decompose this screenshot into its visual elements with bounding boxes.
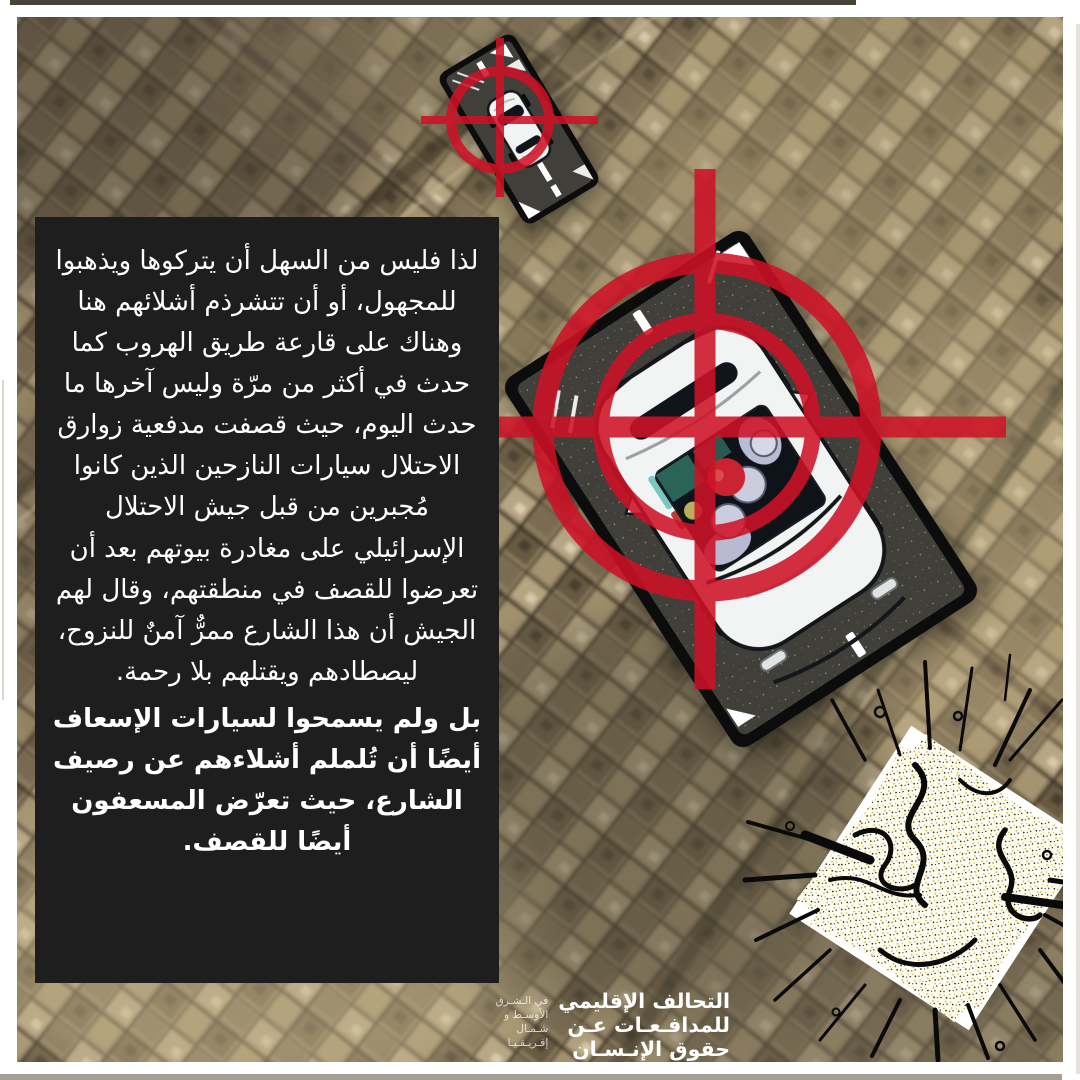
org-region-line: شـمـال bbox=[496, 1022, 549, 1036]
org-name-line: التحالف الإقليمي bbox=[558, 989, 730, 1013]
story-body-text: لذا فليس من السهل أن يتركوها ويذهبوا للم… bbox=[51, 241, 483, 693]
org-region-line: إفـريـقـيـا bbox=[496, 1036, 549, 1050]
crosshair-icon-large bbox=[434, 169, 1006, 689]
org-name: التحالف الإقليمي للمدافـعـات عـن حقوق ال… bbox=[558, 989, 730, 1061]
crosshair-icon-small bbox=[421, 38, 598, 197]
org-logo: التحالف الإقليمي للمدافـعـات عـن حقوق ال… bbox=[430, 989, 730, 1061]
org-region-line: في الـشـرق bbox=[496, 994, 549, 1008]
aerial-photo: لذا فليس من السهل أن يتركوها ويذهبوا للم… bbox=[17, 17, 1063, 1062]
org-name-line: حقوق الإنـسـان bbox=[558, 1037, 730, 1061]
org-name-line: للمدافـعـات عـن bbox=[558, 1013, 730, 1037]
org-region: في الـشـرق الأوسـط و شـمـال إفـريـقـيـا bbox=[496, 989, 549, 1061]
frame-edge-sliver-left bbox=[2, 380, 4, 700]
explosion-burst bbox=[745, 655, 1063, 1060]
frame-edge-sliver-right bbox=[1076, 24, 1080, 1074]
org-region-line: الأوسـط و bbox=[496, 1008, 549, 1022]
frame-edge-sliver-top bbox=[10, 0, 856, 5]
story-textbox: لذا فليس من السهل أن يتركوها ويذهبوا للم… bbox=[35, 217, 499, 983]
frame-edge-sliver-bottom bbox=[0, 1074, 1062, 1080]
scene-layer: لذا فليس من السهل أن يتركوها ويذهبوا للم… bbox=[17, 17, 1063, 1062]
poster-canvas: لذا فليس من السهل أن يتركوها ويذهبوا للم… bbox=[0, 0, 1080, 1080]
story-emphasis-text: بل ولم يسمحوا لسيارات الإسعاف أيضًا أن ت… bbox=[51, 699, 483, 863]
